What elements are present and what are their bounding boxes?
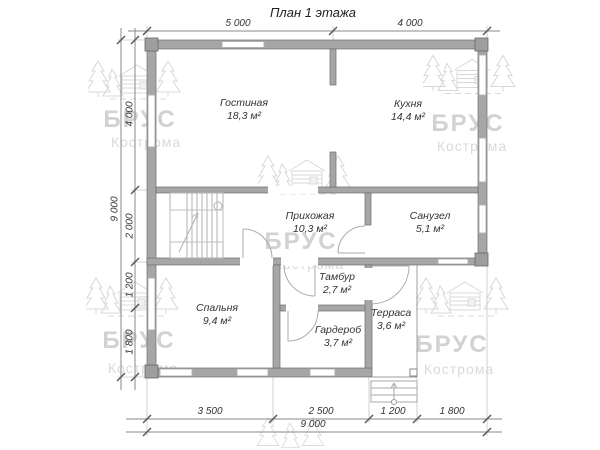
floor-plan-canvas: БРУС Кострома БРУС Кострома БРУС Костром… xyxy=(0,0,600,450)
dim-left-2: 1 200 xyxy=(125,272,136,297)
dim-top-0: 5 000 xyxy=(225,18,250,29)
plan-title: План 1 этажа xyxy=(270,5,356,20)
room-name: Гостиная xyxy=(220,97,268,110)
room-area: 9,4 м² xyxy=(196,315,238,328)
room-name: Кухня xyxy=(391,98,425,111)
dim-bottom-0: 3 500 xyxy=(197,406,222,417)
room-label-living: Гостиная 18,3 м² xyxy=(220,97,268,123)
room-name: Терраса xyxy=(371,307,412,320)
dim-left-total: 9 000 xyxy=(110,196,121,221)
room-label-vestibule: Тамбур 2,7 м² xyxy=(319,271,355,297)
room-area: 18,3 м² xyxy=(220,110,268,123)
room-name: Санузел xyxy=(410,210,451,223)
room-label-wardrobe: Гардероб 3,7 м² xyxy=(315,324,361,350)
room-area: 10,3 м² xyxy=(286,223,335,236)
dim-bottom-3: 1 800 xyxy=(439,406,464,417)
room-area: 5,1 м² xyxy=(410,223,451,236)
dim-bottom-1: 2 500 xyxy=(308,406,333,417)
room-name: Прихожая xyxy=(286,210,335,223)
room-name: Тамбур xyxy=(319,271,355,284)
dim-bottom-2: 1 200 xyxy=(380,406,405,417)
room-area: 3,7 м² xyxy=(315,337,361,350)
dim-top-1: 4 000 xyxy=(397,18,422,29)
room-area: 3,6 м² xyxy=(371,320,412,333)
room-name: Спальня xyxy=(196,302,238,315)
dim-left-3: 1 800 xyxy=(125,329,136,354)
dim-left-0: 4 000 xyxy=(125,101,136,126)
room-label-terrace: Терраса 3,6 м² xyxy=(371,307,412,333)
room-name: Гардероб xyxy=(315,324,361,337)
room-label-kitchen: Кухня 14,4 м² xyxy=(391,98,425,124)
room-area: 2,7 м² xyxy=(319,284,355,297)
room-label-bedroom: Спальня 9,4 м² xyxy=(196,302,238,328)
room-label-hallway: Прихожая 10,3 м² xyxy=(286,210,335,236)
room-label-bathroom: Санузел 5,1 м² xyxy=(410,210,451,236)
dim-bottom-total: 9 000 xyxy=(300,419,325,430)
dim-left-1: 2 000 xyxy=(125,213,136,238)
text-layer: План 1 этажа 5 000 4 000 9 000 4 000 2 0… xyxy=(0,0,600,450)
room-area: 14,4 м² xyxy=(391,111,425,124)
